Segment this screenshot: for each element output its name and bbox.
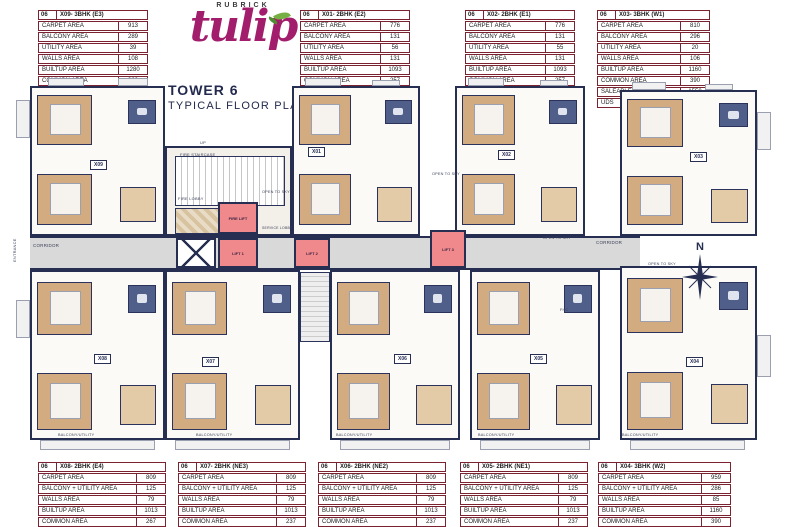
row-label: CARPET AREA [319, 474, 416, 482]
area-table-x08: 06 X08- 2BHK (E4) CARPET AREA 809 BALCON… [38, 462, 166, 527]
area-table-x04: 06 X04- 3BHK (W2) CARPET AREA 959 BALCON… [598, 462, 731, 527]
balcony [118, 78, 148, 86]
row-value: 56 [380, 44, 409, 52]
row-label: UTILITY AREA [301, 44, 380, 52]
row-value: 1160 [701, 507, 730, 515]
kitchen [120, 187, 157, 222]
table-row: BUILTUP AREA 1160 [597, 65, 710, 75]
row-label: CARPET AREA [461, 474, 558, 482]
table-header: 06 X08- 2BHK (E4) [38, 462, 166, 472]
floor-no: 06 [461, 463, 479, 471]
plan-label: BALCONY/UTILITY [622, 433, 658, 437]
row-value: 1013 [416, 507, 445, 515]
table-row: CARPET AREA 913 [38, 21, 148, 31]
bedroom [37, 373, 92, 429]
row-value: 131 [380, 33, 409, 41]
lift-label: LIFT 2 [306, 251, 318, 256]
row-label: BALCONY + UTILITY AREA [179, 485, 276, 493]
table-row: BALCONY + UTILITY AREA 125 [318, 484, 446, 494]
balcony [372, 80, 400, 86]
table-row: WALLS AREA 131 [300, 54, 410, 64]
unit-name: X07- 2BHK (NE3) [197, 463, 305, 471]
row-label: UTILITY AREA [466, 44, 545, 52]
bedroom [477, 282, 530, 335]
balcony-utility-strip [340, 440, 450, 450]
lift-label: FIRE LIFT [229, 216, 248, 221]
row-value: 131 [380, 55, 409, 63]
plan-label: BALCONY/UTILITY [196, 433, 232, 437]
row-value: 1160 [680, 66, 709, 74]
floor-no: 06 [301, 11, 319, 19]
table-header: 06 X02- 2BHK (E1) [465, 10, 575, 20]
table-row: BUILTUP AREA 1093 [300, 65, 410, 75]
floor-no: 06 [179, 463, 197, 471]
kitchen [711, 189, 748, 223]
row-label: WALLS AREA [466, 55, 545, 63]
table-row: WALLS AREA 79 [38, 495, 166, 505]
row-label: WALLS AREA [39, 496, 136, 504]
row-value: 776 [545, 22, 574, 30]
table-rows: CARPET AREA 959 BALCONY + UTILITY AREA 2… [598, 473, 731, 527]
table-row: WALLS AREA 79 [178, 495, 306, 505]
row-value: 1013 [558, 507, 587, 515]
bedroom [37, 174, 92, 225]
row-label: BUILTUP AREA [599, 507, 701, 515]
bedroom [462, 95, 515, 145]
kitchen [556, 385, 591, 425]
row-value: 131 [545, 33, 574, 41]
row-value: 1093 [380, 66, 409, 74]
table-row: CARPET AREA 959 [598, 473, 731, 483]
table-header: 06 X05- 2BHK (NE1) [460, 462, 588, 472]
table-rows: CARPET AREA 809 BALCONY + UTILITY AREA 1… [460, 473, 588, 527]
table-row: BUILTUP AREA 1013 [318, 506, 446, 516]
row-label: BUILTUP AREA [466, 66, 545, 74]
balcony [757, 112, 771, 150]
balcony-utility-strip [40, 440, 155, 450]
row-value: 237 [416, 518, 445, 526]
plan-label: CORRIDOR [33, 243, 59, 248]
unit-tag: X07 [202, 357, 219, 367]
table-row: COMMON AREA 237 [460, 517, 588, 527]
kitchen [255, 385, 292, 425]
unit-tag: X03 [690, 152, 707, 162]
lift-label: LIFT 3 [442, 247, 454, 252]
unit-tag: X09 [90, 160, 107, 170]
bathroom [549, 100, 577, 125]
bedroom [299, 174, 351, 225]
table-row: WALLS AREA 79 [318, 495, 446, 505]
table-row: BUILTUP AREA 1013 [178, 506, 306, 516]
page-title: TOWER 6 TYPICAL FLOOR PLAN [168, 82, 308, 112]
row-value: 289 [118, 33, 147, 41]
row-label: CARPET AREA [301, 22, 380, 30]
table-row: BUILTUP AREA 1280 [38, 65, 148, 75]
table-row: COMMON AREA 237 [178, 517, 306, 527]
row-label: CARPET AREA [466, 22, 545, 30]
unit-tag: X05 [530, 354, 547, 364]
row-value: 267 [136, 518, 165, 526]
bedroom [627, 372, 683, 430]
row-value: 776 [380, 22, 409, 30]
row-value: 1280 [118, 66, 147, 74]
table-row: BUILTUP AREA 1013 [460, 506, 588, 516]
unit-name: X04- 3BHK (W2) [617, 463, 730, 471]
table-rows: CARPET AREA 809 BALCONY + UTILITY AREA 1… [38, 473, 166, 527]
row-label: BALCONY AREA [466, 33, 545, 41]
row-label: CARPET AREA [599, 474, 701, 482]
table-header: 06 X06- 2BHK (NE2) [318, 462, 446, 472]
lift: FIRE LIFT [218, 202, 258, 234]
balcony-utility-strip [480, 440, 590, 450]
row-value: 85 [701, 496, 730, 504]
row-label: UTILITY AREA [598, 44, 680, 52]
lift: LIFT 3 [430, 230, 466, 268]
table-row: CARPET AREA 810 [597, 21, 710, 31]
table-row: COMMON AREA 237 [318, 517, 446, 527]
balcony [16, 100, 30, 138]
plan-label: FIRE STAIRCASE [180, 152, 215, 157]
bathroom [128, 100, 157, 125]
row-label: WALLS AREA [301, 55, 380, 63]
area-table-x06: 06 X06- 2BHK (NE2) CARPET AREA 809 BALCO… [318, 462, 446, 527]
row-value: 55 [545, 44, 574, 52]
unit-name: X08- 2BHK (E4) [57, 463, 165, 471]
row-label: WALLS AREA [319, 496, 416, 504]
row-label: CARPET AREA [598, 22, 680, 30]
row-value: 79 [136, 496, 165, 504]
row-label: BALCONY AREA [39, 33, 118, 41]
plan-label: OPEN TO SKY [262, 190, 290, 194]
open-shaft [300, 272, 330, 342]
table-row: UTILITY AREA 55 [465, 43, 575, 53]
unit-tag: X01 [308, 147, 325, 157]
row-label: BALCONY + UTILITY AREA [39, 485, 136, 493]
floor-no: 06 [466, 11, 484, 19]
balcony [48, 78, 84, 86]
bedroom [172, 282, 227, 335]
floor-no: 06 [319, 463, 337, 471]
unit-x03 [620, 90, 757, 236]
floor-plan-page: RUBRICK tulip TOWER 6 TYPICAL FLOOR PLAN… [0, 0, 787, 527]
unit-x07 [165, 270, 300, 440]
unit-x01 [292, 86, 420, 236]
table-row: BALCONY AREA 131 [465, 32, 575, 42]
table-row: WALLS AREA 106 [597, 54, 710, 64]
floor-no: 06 [39, 11, 57, 19]
plan-subtitle: TYPICAL FLOOR PLAN [168, 100, 308, 112]
table-row: COMMON AREA 390 [598, 517, 731, 527]
row-label: BUILTUP AREA [179, 507, 276, 515]
plan-label: BALCONY/UTILITY [58, 433, 94, 437]
plan-label: BALCONY/UTILITY [478, 433, 514, 437]
table-row: WALLS AREA 85 [598, 495, 731, 505]
table-row: CARPET AREA 809 [460, 473, 588, 483]
corridor [30, 236, 640, 270]
row-value: 125 [136, 485, 165, 493]
plan-label: OPEN TO SKY [432, 172, 460, 176]
bedroom [37, 282, 92, 335]
table-header: 06 X03- 3BHK (W1) [597, 10, 710, 20]
unit-tag: X08 [94, 354, 111, 364]
row-value: 810 [680, 22, 709, 30]
compass-icon: N [676, 238, 724, 304]
row-label: COMMON AREA [319, 518, 416, 526]
row-value: 809 [558, 474, 587, 482]
table-row: BALCONY AREA 131 [300, 32, 410, 42]
row-value: 809 [416, 474, 445, 482]
table-row: WALLS AREA 108 [38, 54, 148, 64]
table-row: CARPET AREA 776 [465, 21, 575, 31]
bathroom [128, 285, 157, 313]
row-value: 1013 [136, 507, 165, 515]
row-value: 79 [416, 496, 445, 504]
kitchen [377, 187, 412, 222]
row-value: 79 [558, 496, 587, 504]
balcony [705, 84, 733, 90]
bathroom [424, 285, 452, 313]
row-value: 237 [276, 518, 305, 526]
table-row: BALCONY AREA 296 [597, 32, 710, 42]
balcony-utility-strip [630, 440, 745, 450]
logo: RUBRICK tulip [178, 2, 308, 49]
tower-title: TOWER 6 [168, 82, 308, 98]
unit-name: X06- 2BHK (NE2) [337, 463, 445, 471]
row-label: BUILTUP AREA [598, 66, 680, 74]
row-value: 809 [276, 474, 305, 482]
row-value: 20 [680, 44, 709, 52]
table-row: BALCONY + UTILITY AREA 125 [38, 484, 166, 494]
bathroom [385, 100, 412, 125]
balcony [468, 78, 504, 86]
unit-name: X03- 3BHK (W1) [616, 11, 709, 19]
table-row: CARPET AREA 809 [318, 473, 446, 483]
row-label: COMMON AREA [599, 518, 701, 526]
bedroom [477, 373, 530, 429]
table-row: BUILTUP AREA 1093 [465, 65, 575, 75]
table-row: WALLS AREA 79 [460, 495, 588, 505]
row-label: BUILTUP AREA [39, 66, 118, 74]
area-table-x05: 06 X05- 2BHK (NE1) CARPET AREA 809 BALCO… [460, 462, 588, 527]
plan-label: FHC [560, 308, 568, 312]
plan-label: SERVICE LOBBY [262, 226, 293, 230]
unit-name: X09- 3BHK (E3) [57, 11, 147, 19]
balcony [757, 335, 771, 377]
row-value: 809 [136, 474, 165, 482]
bathroom [719, 103, 748, 127]
row-label: BUILTUP AREA [39, 507, 136, 515]
bedroom [337, 373, 390, 429]
row-label: CARPET AREA [179, 474, 276, 482]
balcony [632, 82, 666, 90]
table-header: 06 X01- 2BHK (E2) [300, 10, 410, 20]
table-rows: CARPET AREA 809 BALCONY + UTILITY AREA 1… [178, 473, 306, 527]
row-value: 106 [680, 55, 709, 63]
plan-label: OPEN TO SKY [648, 262, 676, 266]
row-label: BALCONY + UTILITY AREA [599, 485, 701, 493]
balcony [16, 300, 30, 338]
kitchen [711, 384, 748, 425]
unit-name: X05- 2BHK (NE1) [479, 463, 587, 471]
row-value: 959 [701, 474, 730, 482]
row-label: WALLS AREA [598, 55, 680, 63]
logo-tulip-text: tulip [178, 5, 308, 49]
row-value: 79 [276, 496, 305, 504]
table-row: BALCONY + UTILITY AREA 125 [460, 484, 588, 494]
table-row: BALCONY + UTILITY AREA 286 [598, 484, 731, 494]
unit-x02 [455, 86, 585, 236]
bedroom [627, 99, 683, 147]
row-value: 296 [680, 33, 709, 41]
kitchen [416, 385, 451, 425]
bedroom [299, 95, 351, 145]
unit-name: X01- 2BHK (E2) [319, 11, 409, 19]
row-value: 1013 [276, 507, 305, 515]
table-row: WALLS AREA 131 [465, 54, 575, 64]
kitchen [541, 187, 576, 222]
row-label: CARPET AREA [39, 474, 136, 482]
row-label: BUILTUP AREA [319, 507, 416, 515]
row-label: WALLS AREA [179, 496, 276, 504]
table-row: BALCONY AREA 289 [38, 32, 148, 42]
table-row: UTILITY AREA 20 [597, 43, 710, 53]
area-table-x07: 06 X07- 2BHK (NE3) CARPET AREA 809 BALCO… [178, 462, 306, 527]
table-header: 06 X04- 3BHK (W2) [598, 462, 731, 472]
plan-label: OPEN TO SKY [543, 236, 571, 240]
table-header: 06 X09- 3BHK (E3) [38, 10, 148, 20]
row-label: BALCONY + UTILITY AREA [461, 485, 558, 493]
table-row: COMMON AREA 267 [38, 517, 166, 527]
plan-label: ENTRANCE [12, 238, 17, 262]
row-label: BUILTUP AREA [301, 66, 380, 74]
plan-label: BALCONY/UTILITY [336, 433, 372, 437]
lift-label: LIFT 1 [232, 251, 244, 256]
row-value: 108 [118, 55, 147, 63]
table-row: CARPET AREA 809 [38, 473, 166, 483]
plan-label: UP [200, 140, 206, 145]
bedroom [627, 278, 683, 332]
row-label: BALCONY AREA [598, 33, 680, 41]
unit-tag: X02 [498, 150, 515, 160]
row-value: 125 [276, 485, 305, 493]
plan-label: FIRE LOBBY [178, 196, 204, 201]
unit-tag: X06 [394, 354, 411, 364]
row-label: WALLS AREA [599, 496, 701, 504]
row-value: 913 [118, 22, 147, 30]
row-label: UTILITY AREA [39, 44, 118, 52]
table-row: CARPET AREA 776 [300, 21, 410, 31]
kitchen [120, 385, 157, 425]
row-label: WALLS AREA [461, 496, 558, 504]
row-label: CARPET AREA [39, 22, 118, 30]
row-label: BALCONY AREA [301, 33, 380, 41]
row-value: 1093 [545, 66, 574, 74]
row-label: BALCONY + UTILITY AREA [319, 485, 416, 493]
row-value: 237 [558, 518, 587, 526]
table-row: BUILTUP AREA 1013 [38, 506, 166, 516]
bathroom [263, 285, 292, 313]
row-value: 39 [118, 44, 147, 52]
bedroom [462, 174, 515, 225]
table-rows: CARPET AREA 809 BALCONY + UTILITY AREA 1… [318, 473, 446, 527]
floor-no: 06 [598, 11, 616, 19]
row-label: BUILTUP AREA [461, 507, 558, 515]
row-value: 125 [558, 485, 587, 493]
compass-n-label: N [696, 241, 704, 253]
row-label: COMMON AREA [461, 518, 558, 526]
table-header: 06 X07- 2BHK (NE3) [178, 462, 306, 472]
row-label: COMMON AREA [39, 518, 136, 526]
balcony-utility-strip [175, 440, 290, 450]
row-value: 131 [545, 55, 574, 63]
north-compass: N [676, 238, 724, 304]
table-row: CARPET AREA 809 [178, 473, 306, 483]
table-row: BUILTUP AREA 1160 [598, 506, 731, 516]
floor-no: 06 [39, 463, 57, 471]
bedroom [172, 373, 227, 429]
row-label: COMMON AREA [179, 518, 276, 526]
balcony [305, 78, 341, 86]
unit-name: X02- 2BHK (E1) [484, 11, 574, 19]
table-row: BALCONY + UTILITY AREA 125 [178, 484, 306, 494]
row-value: 390 [701, 518, 730, 526]
lift: LIFT 2 [294, 238, 330, 268]
plan-label: CORRIDOR [596, 240, 622, 245]
lift: LIFT 1 [218, 238, 258, 268]
row-value: 125 [416, 485, 445, 493]
bedroom [37, 95, 92, 145]
staircase [176, 238, 216, 268]
table-row: UTILITY AREA 56 [300, 43, 410, 53]
bedroom [337, 282, 390, 335]
table-row: UTILITY AREA 39 [38, 43, 148, 53]
balcony [540, 80, 568, 86]
bedroom [627, 176, 683, 226]
row-value: 286 [701, 485, 730, 493]
floor-no: 06 [599, 463, 617, 471]
unit-tag: X04 [686, 357, 703, 367]
row-label: WALLS AREA [39, 55, 118, 63]
